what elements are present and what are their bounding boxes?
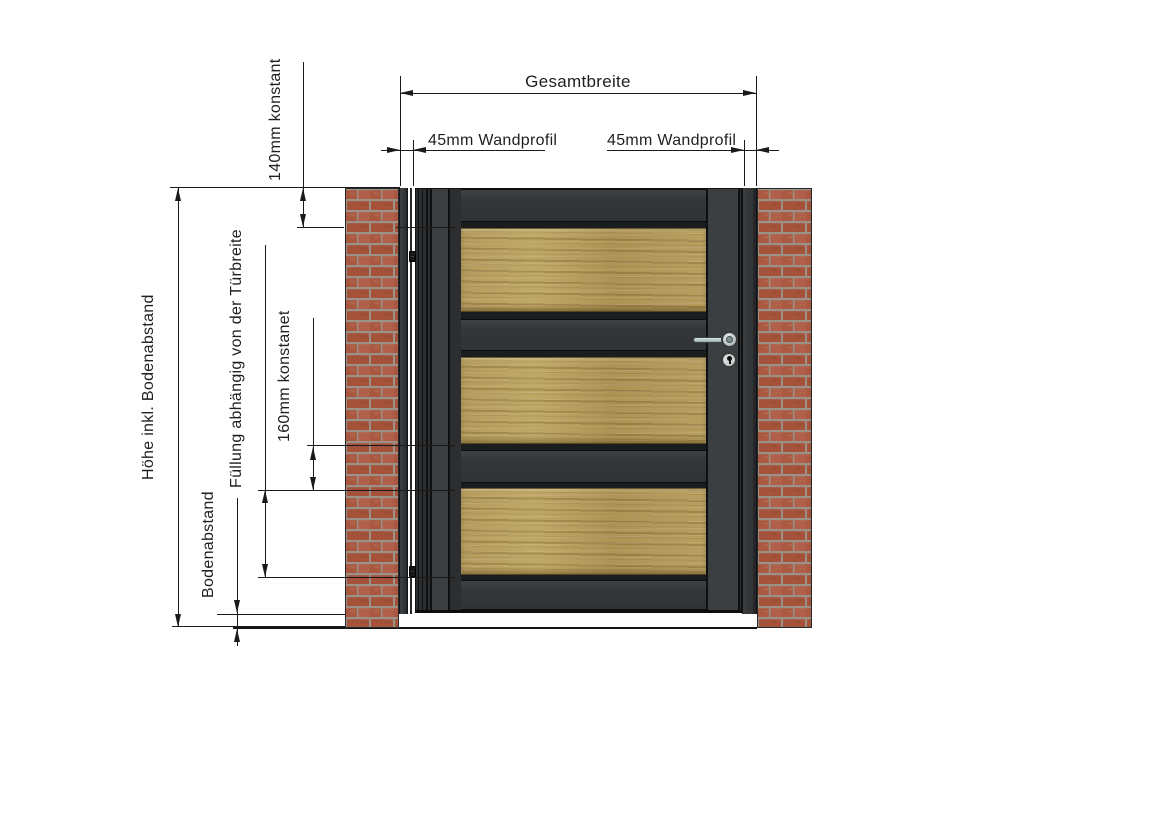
wall-profile-post-right [742,188,757,614]
door-stile-right [706,189,740,610]
dim-label-wandprofil-right: 45mm Wandprofil [607,132,736,150]
ground-line [233,627,757,629]
dim-arrow [175,188,181,201]
dim-arrow [234,600,240,613]
brick-pillar-right [757,188,812,628]
dim-arrow [262,564,268,577]
dim-arrow [310,477,316,490]
ext-line-gate-right [756,76,757,186]
dim-arrow [300,188,306,201]
gate-door-leaf [415,188,742,613]
door-edge-line [742,189,743,610]
dim-arrow [300,214,306,227]
dim-arrow [262,490,268,503]
door-stile-left [430,189,450,610]
dim-line-fuellung [265,245,266,577]
dim-line-160-konstant [313,318,314,490]
door-top-rail [461,189,706,222]
dim-arrow [387,147,400,153]
wood-panel-1 [461,228,706,312]
ext-line-panel-bottom [258,577,455,578]
door-middle-rail-2 [461,450,706,483]
dim-line-hoehe [178,188,179,627]
dim-label-gesamtbreite: Gesamtbreite [400,72,756,92]
dim-label-hoehe: Höhe inkl. Bodenabstand [140,294,158,480]
ext-line-160-top [307,445,455,446]
dim-arrow [413,147,426,153]
dim-label-bodenabstand: Bodenabstand [200,491,218,598]
dim-line-wandprofil-left [381,150,545,151]
hinge-top [409,251,416,262]
ext-line-140-bottom [297,227,344,228]
ext-line-panel-top [258,490,455,491]
brick-texture-left [346,189,398,627]
door-edge-line [426,189,428,610]
lock-cylinder-escutcheon [721,352,737,368]
dim-line-bodenabstand [237,498,238,646]
keyhole-icon [729,359,732,364]
hinge-bottom [409,566,416,577]
wood-panel-3 [461,488,706,575]
wood-panel-2 [461,357,706,444]
ext-line-140-bottom [396,227,455,228]
dim-line-140-konstant [303,62,304,227]
door-bottom-rail [461,580,706,610]
door-edge-line [422,189,423,610]
ext-line-top [170,187,400,188]
dim-label-wandprofil-left: 45mm Wandprofil [428,132,557,150]
brick-pillar-left [345,188,399,628]
door-panel-column [461,189,706,610]
dim-line-wandprofil-right [607,150,779,151]
door-middle-rail-1 [461,319,706,351]
ext-line-ground [172,626,345,627]
ext-line-post-right [744,140,745,186]
door-handle-rosette [721,331,738,348]
door-edge-line [418,189,419,610]
dim-label-160-konstant: 160mm konstanet [276,310,294,442]
dim-line-gesamtbreite [400,93,756,94]
dim-arrow [310,447,316,460]
brick-texture-right [758,189,811,627]
dim-label-140-konstant: 140mm konstant [267,59,285,181]
dim-arrow [234,629,240,642]
wall-profile-post-left [399,188,408,614]
dim-arrow [175,614,181,627]
dim-arrow [756,147,769,153]
dim-label-fuellung: Füllung abhängig von der Türbreite [228,229,246,488]
gate-technical-drawing: Gesamtbreite 45mm Wandprofil 45mm Wandpr… [0,0,1155,817]
